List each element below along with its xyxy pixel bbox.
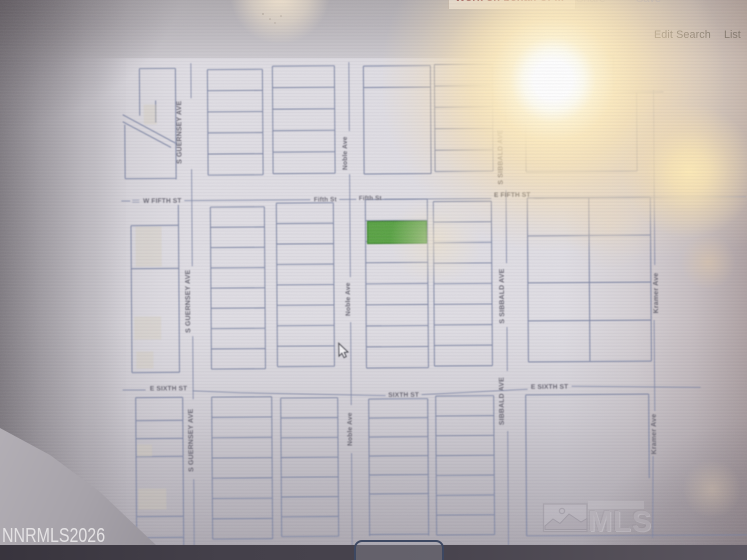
- svg-text:E SIXTH ST: E SIXTH ST: [531, 384, 568, 391]
- svg-text:S GUERNSEY AVE: S GUERNSEY AVE: [176, 101, 183, 164]
- svg-text:S SIBBALD AVE: S SIBBALD AVE: [497, 129, 504, 184]
- svg-text:S GUERNSEY AVE: S GUERNSEY AVE: [188, 408, 195, 471]
- svg-text:S SIBBALD AVE: S SIBBALD AVE: [499, 268, 506, 323]
- svg-text:SIXTH ST: SIXTH ST: [388, 392, 419, 399]
- svg-text:MLS: MLS: [588, 506, 652, 538]
- svg-text:E SIXTH ST: E SIXTH ST: [150, 385, 187, 392]
- svg-text:Fifth St: Fifth St: [314, 196, 337, 203]
- svg-text:Fifth St: Fifth St: [359, 195, 382, 202]
- svg-text:Noble Ave: Noble Ave: [345, 282, 352, 316]
- svg-text:Kramer Ave: Kramer Ave: [651, 414, 658, 455]
- svg-text:SIBBALD AVE: SIBBALD AVE: [499, 377, 506, 425]
- svg-text:Kramer Ave: Kramer Ave: [653, 273, 660, 314]
- svg-text:W FIFTH ST: W FIFTH ST: [143, 198, 182, 205]
- svg-text:Noble Ave: Noble Ave: [347, 412, 354, 446]
- svg-text:Noble Ave: Noble Ave: [342, 136, 349, 170]
- svg-text:E FIFTH ST: E FIFTH ST: [494, 192, 531, 199]
- svg-text:S GUERNSEY AVE: S GUERNSEY AVE: [185, 269, 192, 332]
